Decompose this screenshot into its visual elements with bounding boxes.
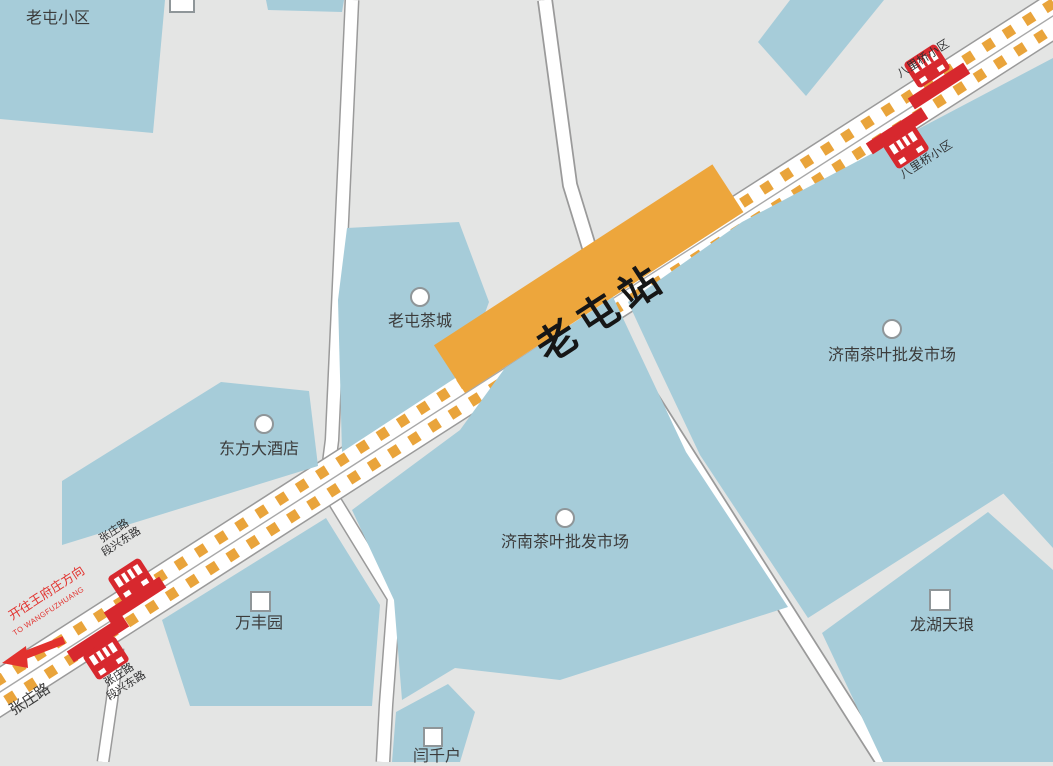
- map-canvas: [0, 0, 1053, 762]
- map-stage: 老屯小区 老屯茶城 东方大酒店 济南茶叶批发市场 济南茶叶批发市场 万丰园 龙湖…: [0, 0, 1053, 762]
- label-laotun-xiaoqu: 老屯小区: [26, 10, 90, 28]
- block-top-sliver: [266, 0, 344, 12]
- marker-dongfang-hotel-circle: [255, 415, 273, 433]
- marker-longhu-square: [930, 590, 950, 610]
- label-dongfang-hotel: 东方大酒店: [199, 441, 319, 459]
- marker-tea-market-b-circle: [883, 320, 901, 338]
- marker-laotun-xiaoqu-square: [170, 0, 194, 12]
- label-laotun-teacity: 老屯茶城: [360, 313, 480, 331]
- label-tea-market-west: 济南茶叶批发市场: [485, 534, 645, 552]
- marker-laotun-teacity-circle: [411, 288, 429, 306]
- marker-tea-market-a-circle: [556, 509, 574, 527]
- label-wanfengyuan: 万丰园: [199, 615, 319, 633]
- label-yanqianhu: 闫千户: [377, 748, 497, 766]
- label-longhu: 龙湖天琅: [882, 617, 1002, 635]
- label-tea-market-east: 济南茶叶批发市场: [812, 347, 972, 365]
- marker-yanqianhu-square: [424, 728, 442, 746]
- marker-wanfengyuan-square: [251, 592, 270, 611]
